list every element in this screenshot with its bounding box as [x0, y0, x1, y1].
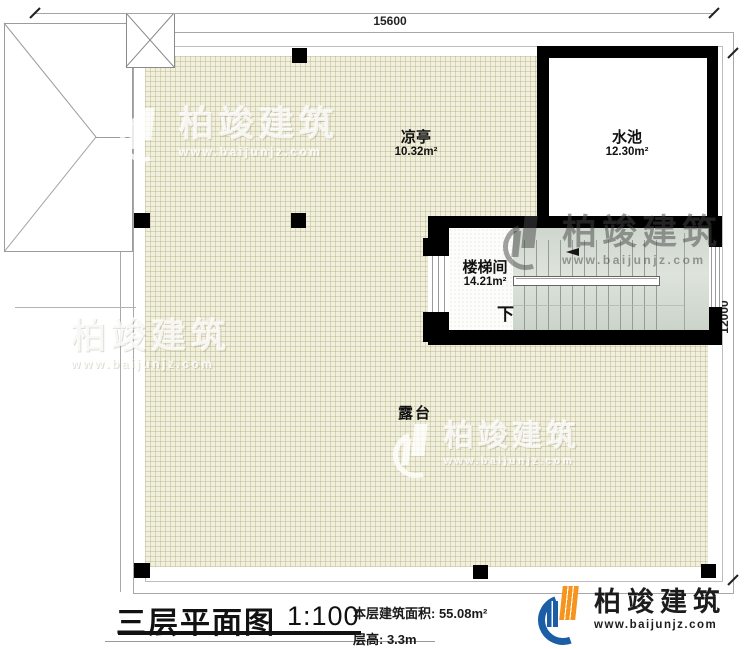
- pool-label: 水池: [587, 130, 667, 146]
- column-marker: [134, 563, 150, 578]
- brand-name: 柏竣建筑: [594, 589, 726, 616]
- plan-title: 三层平面图: [116, 598, 276, 642]
- terrace-label: 露台: [398, 402, 432, 423]
- top-dimension-label: 15600: [355, 14, 425, 28]
- stair-landing-edge: [684, 233, 685, 330]
- floor-height-text: 层高: 3.3m: [353, 629, 417, 648]
- column-marker: [701, 564, 716, 578]
- column-marker: [134, 213, 150, 228]
- stair-direction-label: 下: [497, 300, 514, 325]
- stair-treads-lower: [524, 284, 657, 330]
- roof-outline: [4, 23, 133, 252]
- stair-handrail-inner: [516, 278, 657, 281]
- pavilion-label-block: 凉亭 10.32m²: [376, 130, 456, 158]
- floor-plan-canvas: 15600 12000 水池 12.30m² 楼梯间 14.21m² 下 凉亭 …: [0, 0, 750, 649]
- stair-treads-upper: [524, 240, 657, 276]
- stair-handrail: [513, 276, 660, 286]
- stair-direction-arrow: [566, 248, 579, 256]
- pavilion-area: 10.32m²: [376, 146, 456, 158]
- column-marker: [292, 48, 307, 63]
- lower-floor-edge: [120, 252, 121, 592]
- brand-logo: 柏竣建筑 www.baijunjz.com: [538, 583, 726, 637]
- stair-landing-line: [513, 305, 684, 306]
- plan-scale: 1:100: [287, 601, 360, 632]
- lower-roof-eave: [15, 307, 136, 308]
- pool-label-block: 水池 12.30m²: [587, 130, 667, 158]
- column-marker: [473, 565, 488, 579]
- brand-url: www.baijunjz.com: [594, 619, 726, 631]
- pool-area: 12.30m²: [587, 146, 667, 158]
- stairwell-window: [709, 247, 722, 307]
- watermark-logo-icon: [12, 316, 62, 372]
- baijun-logo-icon: [538, 583, 588, 637]
- stairwell-label-block: 楼梯间 14.21m²: [443, 260, 527, 288]
- stairwell-label: 楼梯间: [443, 260, 527, 276]
- column-marker: [291, 213, 306, 228]
- pavilion-label: 凉亭: [376, 130, 456, 146]
- floor-area-text: 本层建筑面积: 55.08m²: [353, 603, 487, 622]
- title-underline-thick: [118, 631, 361, 635]
- stairwell-area: 14.21m²: [443, 276, 527, 288]
